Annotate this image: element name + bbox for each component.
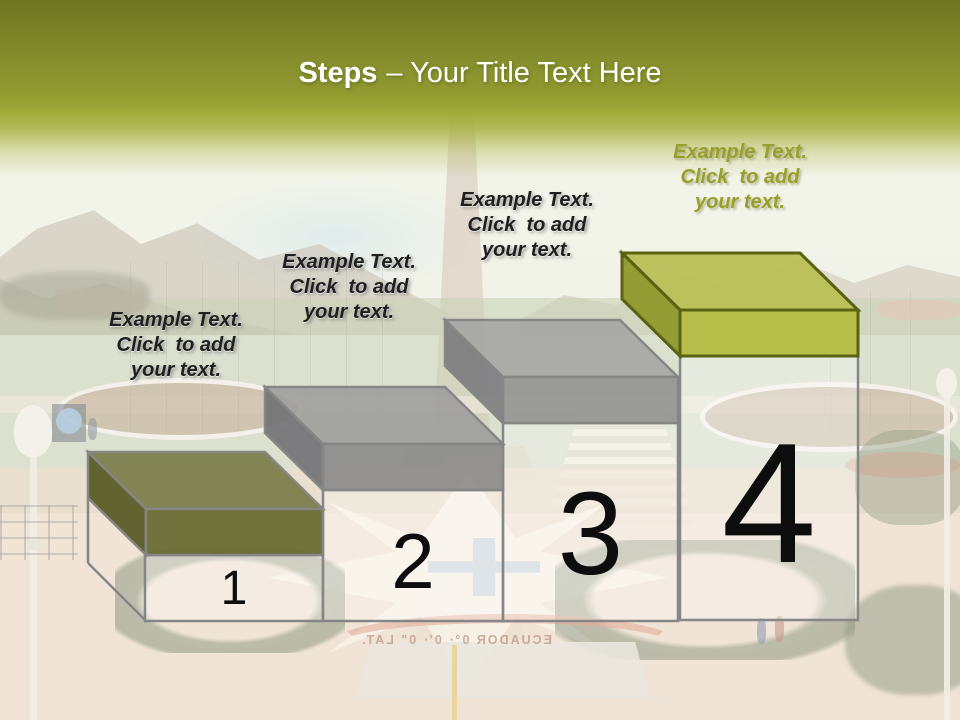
step-4-slab[interactable] [622,253,858,356]
step-1-number[interactable]: 1 [145,565,323,613]
step-3-slab[interactable] [445,320,678,423]
step-2-placeholder-text[interactable]: Example Text. Click to add your text. [249,250,449,325]
step-4-number[interactable]: 4 [680,418,858,589]
step-3-placeholder-text[interactable]: Example Text. Click to add your text. [427,188,627,263]
step-3-slab-front [503,377,678,423]
step-2-number[interactable]: 2 [323,522,503,600]
step-1-slab-front [146,509,323,555]
step-4-placeholder-text[interactable]: Example Text. Click to add your text. [640,140,840,215]
step-3-number[interactable]: 3 [503,475,678,593]
slide-canvas: ECUADOR 0°· 0'· 0" LAT. Steps– Your Titl… [0,0,960,720]
step-2-slab[interactable] [265,387,503,490]
step-2-slab-front [323,444,503,490]
step-1-slab[interactable] [88,452,323,555]
step-4-slab-front [680,310,858,356]
step-1-placeholder-text[interactable]: Example Text. Click to add your text. [76,308,276,383]
wireframe-bottom-slant-edge [88,563,145,620]
